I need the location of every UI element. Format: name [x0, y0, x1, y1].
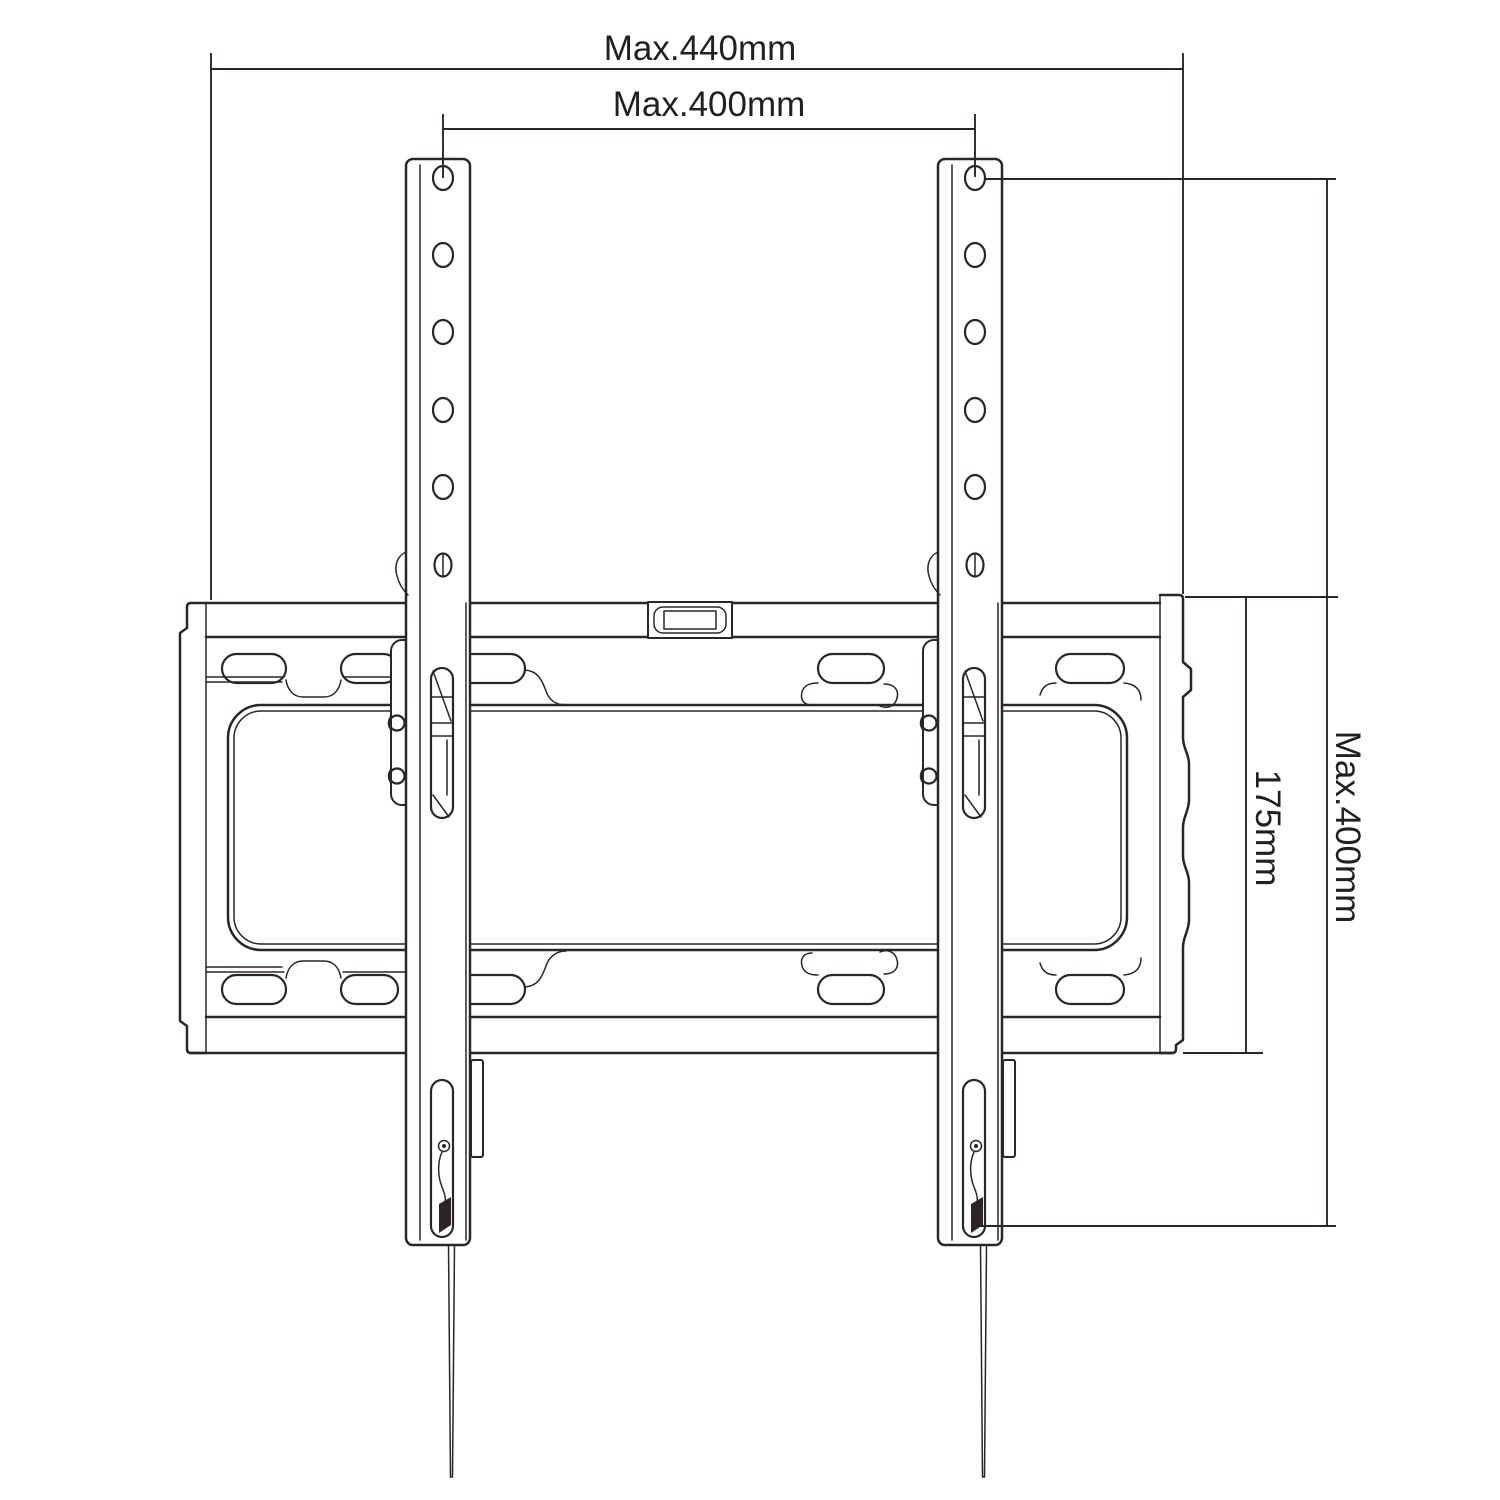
- left-rail-side-strap: [471, 1060, 483, 1157]
- bubble-level: [648, 602, 732, 638]
- mounting-slot: [222, 975, 286, 1004]
- left-vesa-rail: [389, 159, 484, 1477]
- dimension-label-overall-width: Max.440mm: [604, 29, 797, 68]
- wall-mount-drawing: Max.440mm Max.400mm Max.400mm 175mm: [0, 0, 1500, 1500]
- mounting-slot: [341, 975, 398, 1004]
- mounting-slot: [1056, 975, 1124, 1004]
- plate-right-edge: [1160, 595, 1191, 1053]
- right-rail-pull-cord: [981, 1245, 987, 1477]
- right-vesa-rail: [921, 159, 1016, 1477]
- lock-pivot-pin: [974, 1144, 978, 1148]
- right-rail-side-strap: [1003, 1060, 1015, 1157]
- lock-pivot-pin: [442, 1144, 446, 1148]
- mounting-slot: [1056, 654, 1124, 683]
- mounting-slot: [222, 654, 286, 683]
- technical-drawing-page: Max.440mm Max.400mm Max.400mm 175mm: [0, 0, 1500, 1500]
- dimension-mount-hole-height: Max.400mm: [974, 179, 1367, 1226]
- dimension-plate-height: 175mm: [1183, 597, 1338, 1053]
- dimension-mount-hole-width: Max.400mm: [443, 85, 975, 178]
- mounting-slot: [341, 654, 398, 683]
- mounting-slot: [818, 654, 884, 683]
- left-rail-pull-cord: [449, 1245, 455, 1477]
- mounting-slot: [818, 975, 884, 1004]
- wall-plate: [180, 595, 1191, 1053]
- plate-left-edge: [180, 603, 206, 1053]
- dimension-label-mount-hole-height: Max.400mm: [1328, 731, 1367, 924]
- dimension-label-plate-height: 175mm: [1248, 770, 1287, 887]
- dimension-label-mount-hole-width: Max.400mm: [613, 85, 806, 124]
